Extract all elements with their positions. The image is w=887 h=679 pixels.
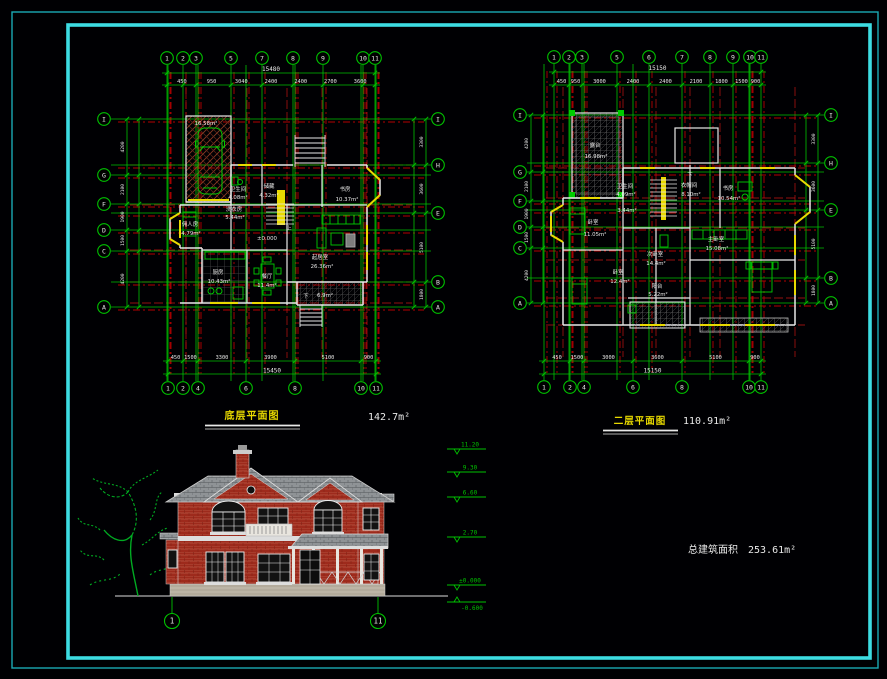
dim-text: I xyxy=(436,115,440,123)
dim-text: 2 xyxy=(181,54,185,62)
dim-text: 2400 xyxy=(659,79,672,85)
dim-text: 11.20 xyxy=(461,442,479,449)
total-area-label: 总建筑面积 xyxy=(688,543,738,556)
dim-text: A xyxy=(518,299,522,307)
dim-text: 3600 xyxy=(354,79,367,85)
dim-text: C xyxy=(518,244,522,252)
gable-window xyxy=(247,486,255,494)
dim-text: 5 xyxy=(229,54,233,62)
plan1-area: 142.7m² xyxy=(368,412,410,423)
dim-text: 15450 xyxy=(263,368,281,375)
total-area-value: 253.61m² xyxy=(748,545,796,556)
dim-text: A xyxy=(102,303,106,311)
dim-text: 10 xyxy=(359,54,367,62)
dim-text: 8 xyxy=(293,384,297,392)
dim-text: A xyxy=(829,299,833,307)
dim-text: E xyxy=(436,209,440,217)
dim-text: 7 xyxy=(260,54,264,62)
dim-text: 4200 xyxy=(120,141,126,152)
dim-text: 950 xyxy=(571,79,581,85)
dim-text: 2700 xyxy=(324,79,337,85)
dim-text: 3 xyxy=(580,53,584,61)
background xyxy=(0,0,887,679)
dim-text: 1500 xyxy=(571,355,584,361)
room-label: 上 xyxy=(286,224,292,232)
dim-text: B xyxy=(436,278,440,286)
room-label: 5.22m² xyxy=(648,291,667,298)
dim-text: 900 xyxy=(364,355,374,361)
dim-text: 450 xyxy=(552,355,562,361)
dim-text: 1500 xyxy=(184,355,197,361)
room-label: 6.9m² xyxy=(317,292,333,299)
dim-text: 6 xyxy=(631,383,635,391)
dim-text: 2100 xyxy=(690,79,703,85)
dim-text: 1800 xyxy=(715,79,728,85)
dim-text: 1500 xyxy=(120,235,126,246)
dim-text: 900 xyxy=(750,355,760,361)
dim-text: 10 xyxy=(745,383,753,391)
dim-text: 2 xyxy=(181,384,185,392)
room-label: 11.05m² xyxy=(584,231,607,238)
room-label: 4.32m² xyxy=(259,192,278,199)
dim-text: 450 xyxy=(557,79,567,85)
dim-text: H xyxy=(436,161,440,169)
dim-text: 6 xyxy=(647,53,651,61)
dim-text: I xyxy=(518,111,522,119)
room-label: 8.10m² xyxy=(681,191,700,198)
dim-text: 3300 xyxy=(419,136,425,147)
porch-fascia xyxy=(288,546,388,549)
dim-text: 5100 xyxy=(811,238,817,249)
room-label: ±0.000 xyxy=(257,236,278,242)
dim-text: 1800 xyxy=(419,289,425,300)
dim-text: 2400 xyxy=(294,79,307,85)
dim-text: 9.30 xyxy=(463,465,478,472)
dim-text: 3000 xyxy=(602,355,615,361)
dim-text: 2100 xyxy=(524,181,530,192)
room-label: 14.4m² xyxy=(646,260,665,267)
room-label: 卧室 xyxy=(588,218,599,226)
dim-text: 11 xyxy=(757,53,765,61)
dim-text: C xyxy=(102,247,106,255)
room-label: 储藏 xyxy=(264,182,275,190)
balcony-rail xyxy=(246,524,292,536)
dim-text: 2100 xyxy=(120,184,126,195)
dim-text: 5100 xyxy=(419,242,425,253)
dim-text: 1900 xyxy=(524,208,530,219)
entry-door xyxy=(300,550,320,584)
dim-text: 1 xyxy=(552,53,556,61)
dim-text: F xyxy=(518,197,522,205)
plan2-title: 二层平面图 xyxy=(614,416,667,427)
plinth xyxy=(170,584,385,596)
dim-text: 2400 xyxy=(265,79,278,85)
room-label: 餐厅 xyxy=(262,272,273,280)
dim-text: D xyxy=(518,223,522,231)
room-label: 4.08m² xyxy=(228,194,247,201)
dim-text: 450 xyxy=(171,355,181,361)
dim-text: 2 xyxy=(568,383,572,391)
room-label: 5.44m² xyxy=(225,214,244,221)
dim-text: 9 xyxy=(321,54,325,62)
dim-text: 6.60 xyxy=(463,490,478,497)
room-label: 卫生间 xyxy=(230,185,246,193)
dim-text: 1 xyxy=(166,384,170,392)
dim-text: 5100 xyxy=(709,355,722,361)
room-label: 主卧室 xyxy=(708,235,725,243)
dim-text: H xyxy=(829,159,833,167)
dim-text: 10 xyxy=(357,384,365,392)
dim-text: 11 xyxy=(371,54,379,62)
room-label: 10.43m² xyxy=(208,278,231,285)
dim-text: E xyxy=(829,206,833,214)
room-label: 阳台 xyxy=(652,282,663,290)
dim-text: G xyxy=(102,171,106,179)
room-label: 12.4m² xyxy=(610,278,629,285)
dim-text: 6 xyxy=(244,384,248,392)
dim-text: 3300 xyxy=(216,355,229,361)
dim-text: -0.600 xyxy=(461,605,483,612)
room-label: 26.36m² xyxy=(311,263,334,270)
dim-text: 5100 xyxy=(322,355,335,361)
room-label: 佣人房 xyxy=(182,220,198,228)
room-label: 卧室 xyxy=(613,268,624,276)
dim-text: 11 xyxy=(757,383,765,391)
dim-text: I xyxy=(102,115,106,123)
room-label: 10.54m² xyxy=(718,195,741,202)
dim-text: 900 xyxy=(751,79,761,85)
porch-roof xyxy=(290,534,388,548)
room-label: 卫生间 xyxy=(617,182,633,190)
chimney xyxy=(233,445,252,478)
room-label: 厨房 xyxy=(213,268,224,276)
room-label: 下 xyxy=(687,172,693,179)
cad-drawing-canvas: 12357891011124681011IGFDCAIHEBA154804509… xyxy=(0,0,887,679)
dim-text: 4200 xyxy=(524,138,530,149)
room-label: 11.4m² xyxy=(257,282,276,289)
garage-floor xyxy=(186,116,231,202)
dim-text: 1900 xyxy=(120,211,126,222)
room-label: 下 xyxy=(303,293,309,300)
dim-text: A xyxy=(436,303,440,311)
dim-text: 10 xyxy=(746,53,754,61)
dim-text: B xyxy=(829,274,833,282)
dim-text: 3300 xyxy=(811,133,817,144)
dim-text: 4 xyxy=(196,384,200,392)
dim-text: 4200 xyxy=(120,273,126,284)
dim-text: 9 xyxy=(731,53,735,61)
room-label: 露台 xyxy=(590,141,601,149)
dim-text: 2 xyxy=(567,53,571,61)
dim-text: F xyxy=(102,200,106,208)
dim-text: 7 xyxy=(680,53,684,61)
dim-text: I xyxy=(829,111,833,119)
dim-text: 11 xyxy=(372,384,380,392)
dim-text: 15480 xyxy=(262,66,280,73)
dim-text: 1500 xyxy=(735,79,748,85)
room-label: 起居室 xyxy=(312,253,329,261)
room-label: 次卧室 xyxy=(647,250,664,258)
dim-text: 8 xyxy=(680,383,684,391)
dim-text: 1 xyxy=(165,54,169,62)
dim-text: 1 xyxy=(542,383,546,391)
dim-text: 3900 xyxy=(264,355,277,361)
dim-text: 3600 xyxy=(419,183,425,194)
room-label: 4.09m² xyxy=(616,191,635,198)
dim-text: 15150 xyxy=(648,65,666,72)
room-label: 书房 xyxy=(723,184,734,192)
dim-text: 5 xyxy=(615,53,619,61)
dim-text: 15150 xyxy=(643,368,661,375)
dim-text: 1800 xyxy=(811,285,817,296)
room-label: 4.79m² xyxy=(181,230,200,237)
dim-text: 450 xyxy=(177,79,187,85)
room-label: 15.08m² xyxy=(706,245,729,252)
dim-text: 3040 xyxy=(235,79,248,85)
dim-text: 3000 xyxy=(593,79,606,85)
dim-text: G xyxy=(518,168,522,176)
room-label: 3.44m² xyxy=(617,207,636,214)
dim-text: ±0.000 xyxy=(459,578,481,585)
dim-text: 8 xyxy=(708,53,712,61)
room-label: 16.58m² xyxy=(195,120,218,127)
dim-text: 8 xyxy=(291,54,295,62)
room-label: 洗衣房 xyxy=(226,205,242,213)
room-label: 10.37m² xyxy=(336,196,359,203)
dim-text: 950 xyxy=(207,79,217,85)
plan1-title: 底层平面图 xyxy=(225,409,280,422)
dim-text: 1500 xyxy=(524,232,530,243)
dim-text: 2400 xyxy=(627,79,640,85)
dim-text: 11 xyxy=(373,617,382,626)
dim-text: 4 xyxy=(582,383,586,391)
dim-text: D xyxy=(102,226,106,234)
dim-text: 3600 xyxy=(811,181,817,192)
room-label: 16.98m² xyxy=(585,153,608,160)
dim-text: 2.70 xyxy=(463,530,478,537)
plan2-area: 110.91m² xyxy=(683,416,731,427)
dim-text: 3 xyxy=(194,54,198,62)
room-label: 衣帽间 xyxy=(681,181,697,189)
dim-text: 3600 xyxy=(651,355,664,361)
dim-text: 1 xyxy=(170,617,175,626)
room-label: 书房 xyxy=(340,185,351,193)
dim-text: 4200 xyxy=(524,270,530,281)
